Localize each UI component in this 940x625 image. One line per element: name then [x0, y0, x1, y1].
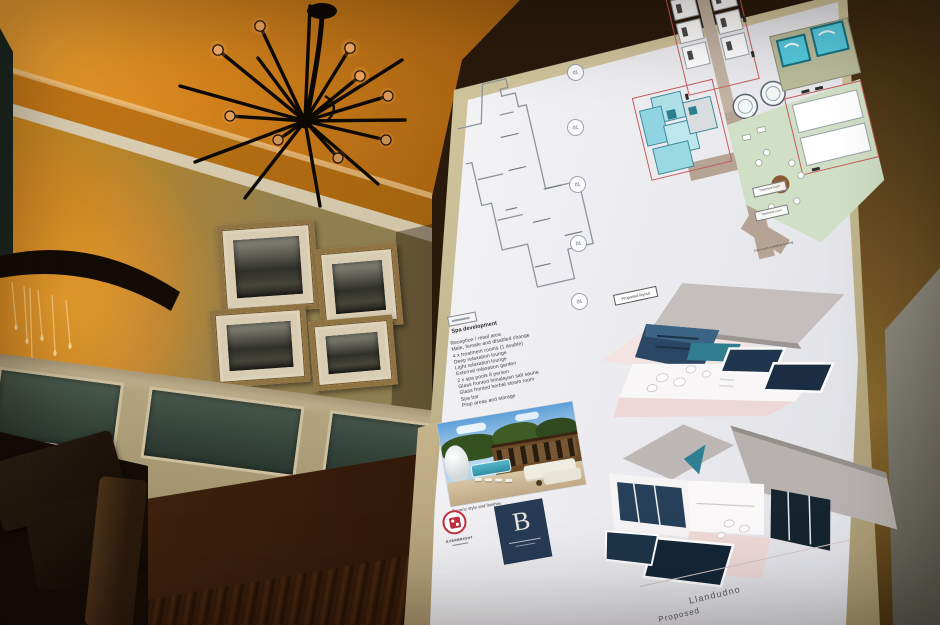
wainscot-panel: [144, 390, 301, 475]
key-box-smudge: [452, 317, 470, 322]
photo-lounger: [495, 479, 502, 482]
hotel-logo-line: [516, 543, 536, 547]
vintage-photo: [233, 236, 303, 298]
everbright-logo-ring: [441, 508, 469, 536]
vintage-photo: [332, 260, 386, 314]
photo-lounger: [485, 478, 492, 481]
hotel-logo-line: [509, 538, 541, 545]
hotel-logo-monogram: B: [511, 507, 533, 536]
everbright-logo-glyph: [448, 516, 461, 529]
wall-sconce: [0, 232, 200, 367]
lounge-photo: 01 01 01 01 01: [0, 0, 940, 625]
vintage-photo: [226, 321, 293, 371]
hotel-logo-plaque: B: [494, 499, 551, 564]
photo-lounger: [505, 479, 512, 482]
framed-photo-bottom-left: [209, 304, 310, 389]
photo-lounger: [475, 478, 482, 481]
chandelier-bulbs: [209, 17, 396, 166]
framed-photo-bottom-right: [308, 314, 398, 391]
vintage-photo: [325, 332, 380, 374]
chandelier: [150, 0, 470, 235]
everbright-logo-subline: [452, 542, 468, 546]
